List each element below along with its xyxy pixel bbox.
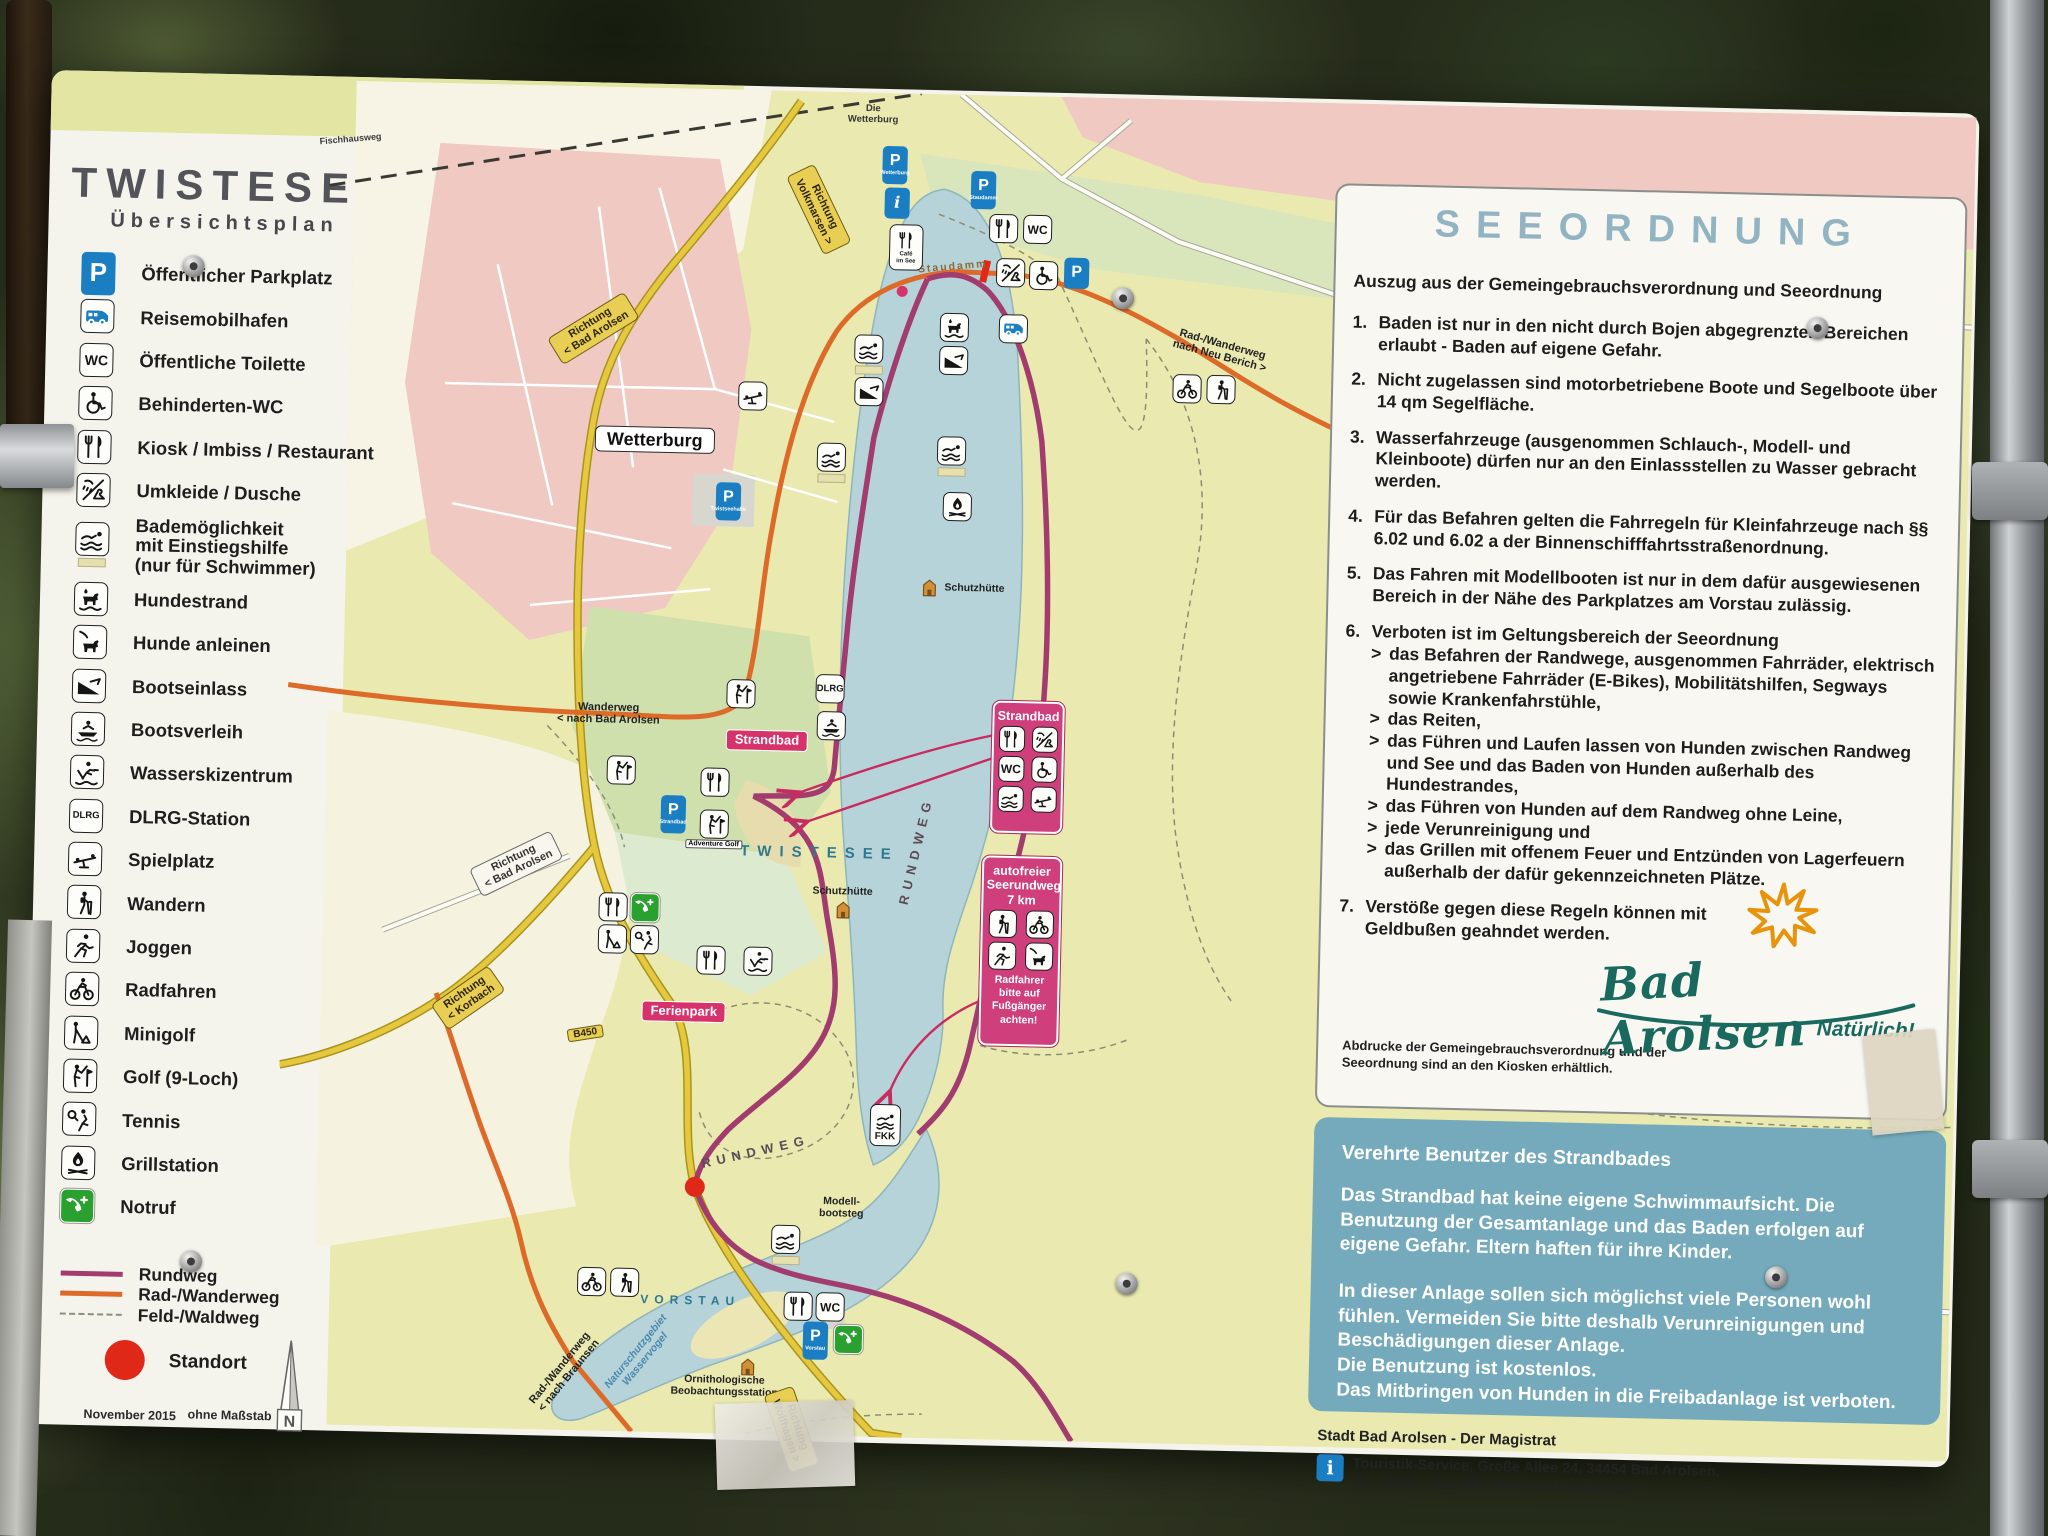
post-bracket-left [0,424,74,488]
info-icon: i [1316,1454,1344,1482]
map-scale-note: ohne Maßstab [187,1407,271,1423]
wheelchair-icon [1031,757,1058,784]
legend-item-label: Bademöglichkeit mit Einstiegshilfe (nur … [135,516,317,579]
legend-item: Spielplatz [68,839,369,886]
strandbad-callout-title: Strandbad [997,709,1059,725]
boat-icon [816,711,846,741]
dog-beach-icon [940,313,970,343]
map-label: Rad-/Wanderweg nach Neu Berich > [1171,326,1270,375]
map-label: TWISTESEE [740,843,899,863]
seeordnung-rule: 1.Baden ist nur in den nicht durch Bojen… [1352,312,1945,369]
map-label: RUNDWEG [700,1133,811,1172]
legend-item: Notruf [60,1186,361,1233]
map-label: VORSTAU [640,1293,740,1309]
seeordnung-rule: 3.Wasserfahrzeuge (ausgenommen Schlauch-… [1349,426,1942,504]
seeordnung-title: SEEORDNUNG [1336,201,1965,258]
minigolf-icon [64,1015,99,1050]
minigolf-icon [598,924,628,954]
legend-item: DLRGDLRG-Station [69,795,370,842]
seeordnung-rules: 1.Baden ist nur in den nicht durch Bojen… [1339,312,1945,952]
route-line-swatch [60,1291,122,1297]
map-marker [834,1325,864,1355]
map-marker [700,767,730,797]
legend-item: Grillstation [61,1142,362,1189]
map-marker [996,258,1026,288]
seerundweg-callout-title: autofreier Seerundweg 7 km [986,863,1057,908]
legend-item-label: Golf (9-Loch) [123,1067,239,1089]
fkk-icon: FKK [869,1104,901,1147]
map-marker: PStaudamm [971,171,997,210]
legend-item-label: Reisemobilhafen [140,308,288,331]
map-label: Rad-/Wanderweg < nach Braunsen [527,1330,602,1414]
seeordnung-rule-text: Das Fahren mit Modellbooten ist nur in d… [1372,563,1939,619]
legend-item-label: Tennis [122,1110,181,1131]
playground-icon [68,842,103,877]
golfer-icon [726,679,756,709]
map-marker [726,679,756,709]
phone-icon [60,1189,95,1224]
tennis-icon [62,1102,97,1137]
legend-item: Minigolf [64,1012,365,1059]
map-label: Wanderweg < nach Bad Arolsen [557,700,660,727]
map-marker [832,899,854,921]
map-label: Richtung Volkmarsen > [786,164,851,256]
seeordnung-rule-text: Nicht zugelassen sind motorbetriebene Bo… [1377,370,1944,426]
legend-item: Wandern [67,882,368,929]
map-label: Ornithologische Beobachtungsstation [670,1374,778,1400]
map-marker [630,893,660,923]
parking-icon: PVorstau [802,1321,828,1360]
north-arrow-icon: N [267,1337,313,1434]
hut-icon [832,899,854,921]
cafe-icon: Café im See [889,224,924,271]
legend-item: Golf (9-Loch) [63,1056,364,1103]
sign-board: TWISTESEE Übersichtsplan [21,70,1979,1467]
legend-item: Kiosk / Imbiss / Restaurant [77,426,378,473]
seeordnung-rule-text: Wasserfahrzeuge (ausgenommen Schlauch-, … [1375,427,1942,505]
info-icon: i [884,187,910,219]
seeordnung-panel: SEEORDNUNG Auszug aus der Gemeingebrauch… [1315,183,1968,1121]
phone-icon [834,1325,864,1355]
map-marker [943,492,973,522]
playground-icon [1030,787,1057,814]
notice-title: Verehrte Benutzer des Strandbades [1341,1142,1917,1178]
seeordnung-rule-text: Baden ist nur in den nicht durch Bojen a… [1378,312,1945,368]
golfer-icon [699,809,729,839]
standort-label: Standort [168,1351,247,1375]
legend-item: PÖffentlicher Parkplatz [81,253,382,300]
map-marker-label: Adventure Golf [685,839,742,849]
parking-icon: PWetterburg [882,146,908,185]
map-marker [816,442,846,483]
boat-ramp-icon [939,346,969,376]
legend-item-label: Grillstation [121,1154,219,1176]
map-marker [771,1225,801,1266]
seeordnung-rule: 4.Für das Befahren gelten die Fahrregeln… [1347,505,1940,562]
dlrg-icon: DLRG [69,798,104,833]
map-label: Fischhausweg [319,131,382,146]
legend-item: Umkleide / Dusche [76,470,377,517]
waterski-icon [743,946,773,976]
map-marker: PStrandbad [660,795,686,834]
legend-item-label: Notruf [120,1197,176,1218]
tape-scrap [1863,1029,1945,1136]
swimmer-access-icon [75,521,110,567]
legend-item: Hundestrand [74,578,375,625]
rv-icon [999,314,1029,344]
map-marker [854,334,884,375]
wc-icon: WC [79,342,114,377]
map-marker [743,946,773,976]
wc-icon: WC [1023,215,1053,245]
hiker-icon [988,910,1017,939]
map-label: Naturschutzgebiet Wasservogel [603,1313,679,1399]
wc-icon: WC [815,1292,845,1322]
boat-ramp-icon [854,377,884,407]
playground-icon [738,381,768,411]
legend-item: Reisemobilhafen [80,296,381,343]
hiker-icon [1206,375,1236,405]
seeordnung-rule: 2.Nicht zugelassen sind motorbetriebene … [1351,369,1944,426]
rv-icon [80,299,115,334]
restaurant-icon [77,429,112,464]
swimmer-icon [997,786,1024,813]
swimmer-access-icon [816,442,846,483]
hiker-icon [67,885,102,920]
shower-icon [76,473,111,508]
map-label: Staudamm [918,259,988,276]
map-marker: Café im See [889,224,924,271]
dlrg-icon: DLRG [815,674,845,704]
restaurant-icon [783,1291,813,1321]
legend-item-label: Öffentlicher Parkplatz [141,264,333,288]
map-marker [738,381,768,411]
map-label: Wetterburg [595,425,715,454]
route-line-swatch [60,1313,122,1316]
map-marker [598,924,628,954]
sticker-scrap [715,1400,855,1490]
legend-item-label: Spielplatz [128,850,215,872]
map-marker: WC [815,1292,845,1322]
parking-icon: PStrandbad [660,795,686,834]
map-label: B450 [567,1024,604,1042]
restaurant-icon [998,726,1025,753]
hiker-icon [610,1267,640,1297]
legend-list: PÖffentlicher ParkplatzReisemobilhafenWC… [60,253,382,1236]
legend-item-label: Öffentliche Toilette [139,351,306,375]
phone-icon [630,893,660,923]
legend-item: Bootseinlass [72,665,373,712]
svg-text:N: N [283,1414,295,1431]
golfer-icon [606,755,636,785]
dog-leash-icon [1024,942,1053,971]
wc-icon: WC [998,756,1025,783]
cyclist-icon [1025,910,1054,939]
jogger-icon [66,928,101,963]
restaurant-icon [696,945,726,975]
map-marker [816,711,846,741]
strandbad-callout-icons: WC [995,726,1059,813]
dog-leash-icon [73,625,108,660]
restaurant-icon [700,767,730,797]
notice-paragraphs: Das Strandbad hat keine eigene Schwimmau… [1336,1184,1917,1417]
metal-post-right [1990,0,2044,1536]
shower-icon [996,258,1026,288]
dog-beach-icon [74,581,109,616]
legend-item: Radfahren [65,969,366,1016]
grill-icon [61,1145,96,1180]
route-legend: RundwegRad-/WanderwegFeld-/Waldweg [60,1263,281,1329]
legend-item-label: Bootsverleih [131,720,243,742]
map-label: Richtung < Bad Arolsen [547,292,640,365]
map-marker: PVorstau [802,1321,828,1360]
hut-icon [918,577,940,599]
map-label: Richtung < Bad Arolsen [469,830,563,897]
jogger-icon [987,942,1016,971]
map-label: Richtung < Korbach [431,965,506,1030]
standort-dot [104,1340,145,1381]
legend-item: Tennis [62,1099,363,1146]
strandbad-notice: Verehrte Benutzer des Strandbades Das St… [1308,1117,1947,1425]
parking-icon: P [1064,258,1090,290]
map-marker [610,1267,640,1297]
map-marker: WC [1023,215,1053,245]
map-marker: FKK [869,1104,901,1147]
seeordnung-rule-text: Verboten ist im Geltungsbereich der Seeo… [1366,621,1938,895]
restaurant-icon [598,892,628,922]
map-marker [606,755,636,785]
cyclist-icon [1172,374,1202,404]
parking-icon: PTwistseehalle [715,482,741,521]
map-marker: PWetterburg [882,146,908,185]
legend-item: Behinderten-WC [78,383,379,430]
legend-item: Wasserskizentrum [70,752,371,799]
wheelchair-icon [1029,261,1059,291]
legend-item-label: Hunde anleinen [133,633,271,656]
post-clamp [1972,1140,2048,1198]
waterski-icon [70,755,105,790]
post-clamp [1972,462,2048,520]
legend-item-label: Umkleide / Dusche [136,481,301,505]
seerundweg-callout-note: Radfahrer bitte auf Fußgänger achten! [984,974,1055,1028]
boat-icon [71,712,106,747]
notice-paragraph: Das Strandbad hat keine eigene Schwimmau… [1339,1184,1917,1271]
seeordnung-rule: 6.Verboten ist im Geltungsbereich der Se… [1340,620,1938,895]
route-legend-label: Feld-/Waldweg [138,1305,260,1329]
legend-item: Hunde anleinen [73,622,374,669]
legend-item: Bootsverleih [71,709,372,756]
tennis-icon [630,925,660,955]
legend-item-label: DLRG-Station [129,807,251,830]
map-marker [937,436,967,477]
map-marker: DLRG [815,674,845,704]
map-label: Die Wetterburg [848,103,899,125]
legend-item-label: Kiosk / Imbiss / Restaurant [137,438,374,463]
map-marker [598,892,628,922]
seeordnung-intro: Auszug aus der Gemeingebrauchsverordnung… [1353,271,1949,306]
legend-item: Bademöglichkeit mit Einstiegshilfe (nur … [75,513,376,582]
map-marker [696,945,726,975]
map-marker [940,313,970,343]
route-legend-label: Rundweg [138,1264,217,1287]
route-legend-item: Feld-/Waldweg [60,1303,280,1328]
map-label: Schutzhütte [944,583,1004,596]
map-marker [939,346,969,376]
grill-icon [943,492,973,522]
map-marker [854,377,884,407]
map-marker [918,577,940,599]
map-marker [630,925,660,955]
seeordnung-rule: 5.Das Fahren mit Modellbooten ist nur in… [1346,563,1939,620]
map-label: Modell- bootsteg [819,1196,864,1220]
map-marker [1206,375,1236,405]
parking-icon: PStaudamm [971,171,997,210]
legend-item-label: Bootseinlass [132,677,248,699]
map-marker [1029,261,1059,291]
map-date-note: November 2015 [83,1407,176,1423]
seerundweg-callout: autofreier Seerundweg 7 km Radfahrer bit… [978,855,1062,1047]
legend-item-label: Behinderten-WC [138,394,283,417]
map-marker [783,1291,813,1321]
hut-icon [737,1356,759,1378]
legend-item-label: Minigolf [124,1024,195,1045]
map-label: Schutzhütte [812,886,872,899]
map-marker [999,314,1029,344]
cyclist-icon [577,1267,607,1297]
legend-item-label: Hundestrand [134,590,249,612]
legend-item-label: Joggen [126,937,192,958]
notice-paragraph: In dieser Anlage sollen sich möglichst v… [1337,1280,1915,1367]
map-label: Ferienpark [642,1001,725,1021]
shower-icon [1031,727,1058,754]
seeordnung-rule-text: Für das Befahren gelten die Fahrregeln f… [1373,506,1940,562]
map-label: Strandbad [727,730,808,750]
map-label: RUNDWEG [897,795,937,906]
swimmer-access-icon [771,1225,801,1266]
map-marker [737,1356,759,1378]
legend-item: WCÖffentliche Toilette [79,339,380,386]
swimmer-access-icon [937,436,967,477]
map-marker: Adventure Golf [685,809,742,849]
cyclist-icon [65,972,100,1007]
map-marker [989,214,1019,244]
map-marker [1172,374,1202,404]
seerundweg-callout-icons [985,910,1056,972]
parking-icon: P [81,251,116,295]
legend-item: Joggen [66,925,367,972]
swimmer-access-icon [854,334,884,375]
strandbad-callout: Strandbad WC [990,701,1065,835]
route-line-swatch [61,1270,123,1276]
map-marker [577,1267,607,1297]
legend-item-label: Radfahren [125,980,217,1002]
legend-item-label: Wandern [127,893,206,915]
map-marker: PTwistseehalle [715,482,741,521]
boat-ramp-icon [72,668,107,703]
golfer-icon [63,1059,98,1094]
wheelchair-icon [78,386,113,421]
map-marker: i [884,187,910,219]
logo-star-icon [1740,880,1828,952]
map-marker: P [1064,258,1090,290]
restaurant-icon [989,214,1019,244]
legend-item-label: Wasserskizentrum [130,763,293,786]
